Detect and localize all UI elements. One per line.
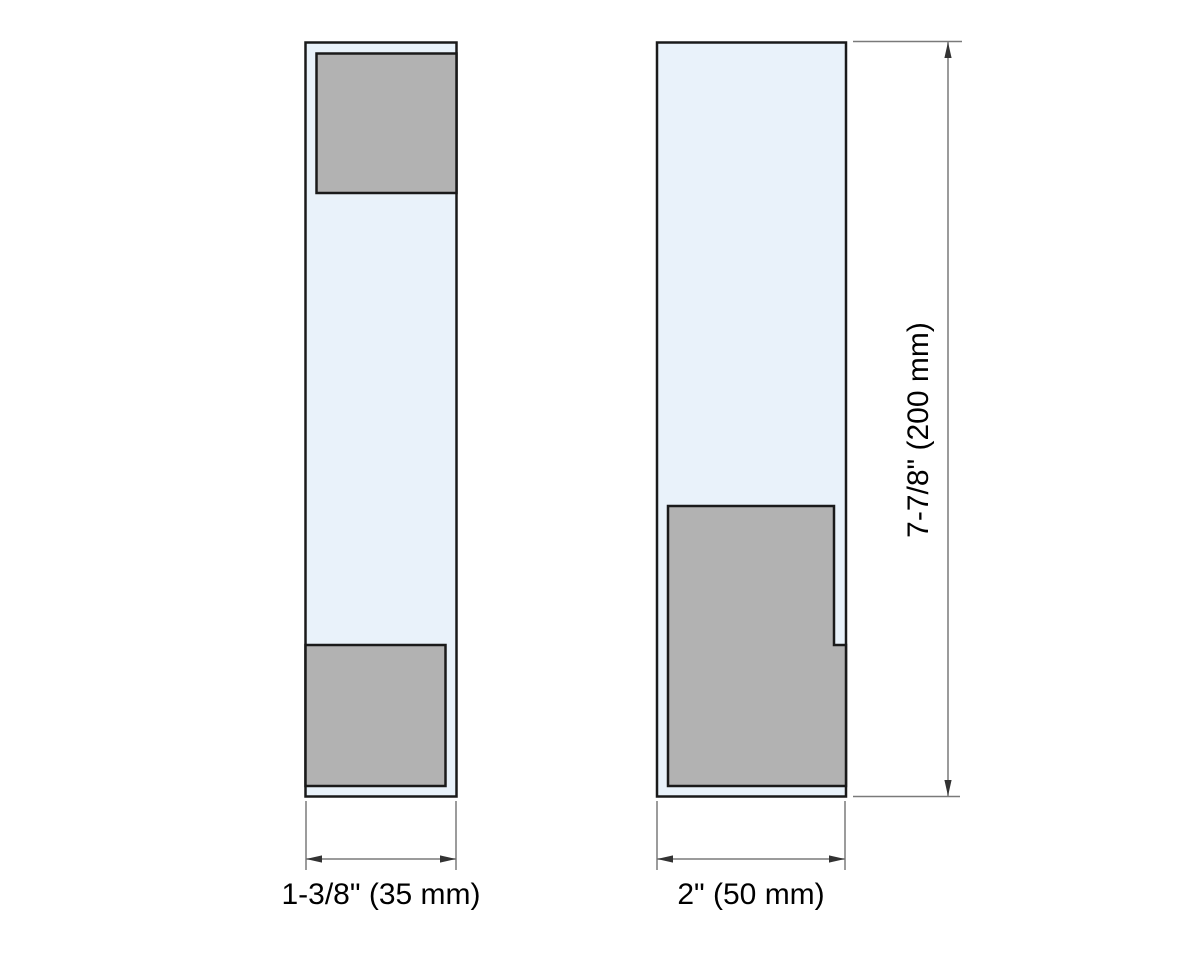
left-profile-bottom-block	[306, 645, 446, 786]
arrowhead-left-icon	[657, 855, 673, 862]
drawing-canvas: 1-3/8" (35 mm) 2" (50 mm) 7-7/8" (200 mm…	[0, 0, 1200, 960]
arrowhead-up-icon	[944, 42, 951, 58]
left-profile-view	[306, 43, 457, 797]
left-profile-top-block	[317, 54, 457, 194]
dimension-drawing: 1-3/8" (35 mm) 2" (50 mm) 7-7/8" (200 mm…	[0, 0, 1200, 960]
arrowhead-right-icon	[829, 855, 845, 862]
right-profile-bottom-block	[668, 506, 846, 786]
dimension-label-height: 7-7/8" (200 mm)	[902, 322, 935, 538]
dimension-right-width: 2" (50 mm)	[657, 801, 845, 911]
dimension-label-right-width: 2" (50 mm)	[677, 878, 824, 911]
arrowhead-right-icon	[440, 855, 456, 862]
dimension-label-left-width: 1-3/8" (35 mm)	[281, 878, 480, 911]
arrowhead-down-icon	[944, 780, 951, 796]
arrowhead-left-icon	[306, 855, 322, 862]
right-profile-view	[657, 43, 846, 797]
dimension-height: 7-7/8" (200 mm)	[853, 42, 962, 797]
dimension-left-width: 1-3/8" (35 mm)	[281, 801, 480, 911]
